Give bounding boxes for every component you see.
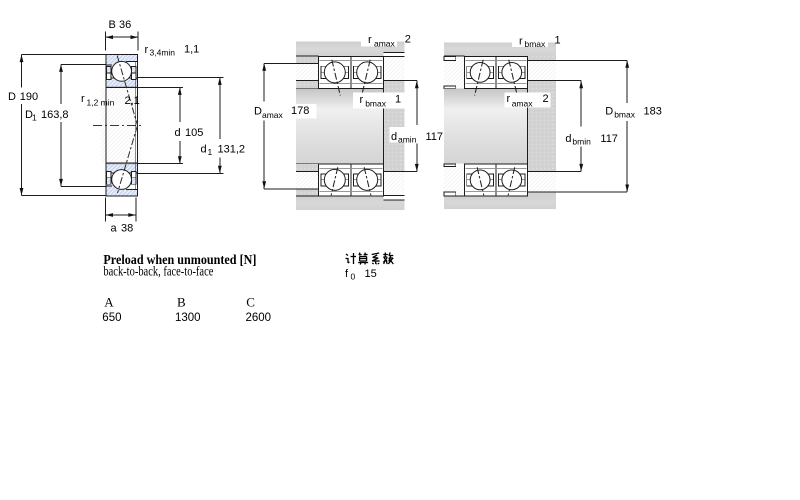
svg-text:105: 105 bbox=[185, 127, 203, 139]
svg-text:1: 1 bbox=[32, 113, 37, 123]
svg-text:A: A bbox=[104, 294, 114, 309]
svg-text:r: r bbox=[507, 93, 511, 105]
svg-text:bmax: bmax bbox=[525, 39, 547, 49]
svg-text:38: 38 bbox=[121, 223, 133, 235]
svg-text:d: d bbox=[201, 144, 207, 156]
svg-text:2: 2 bbox=[405, 34, 411, 46]
svg-text:117: 117 bbox=[600, 133, 618, 145]
svg-text:0: 0 bbox=[351, 272, 356, 282]
svg-text:2: 2 bbox=[543, 93, 549, 105]
svg-text:163,8: 163,8 bbox=[41, 109, 69, 121]
svg-text:117: 117 bbox=[426, 131, 444, 143]
svg-text:r: r bbox=[81, 93, 85, 105]
svg-text:131,2: 131,2 bbox=[218, 144, 246, 156]
svg-text:r: r bbox=[519, 36, 523, 48]
svg-text:a: a bbox=[111, 223, 118, 235]
svg-text:D: D bbox=[254, 106, 262, 118]
svg-text:15: 15 bbox=[365, 268, 377, 280]
svg-text:amin: amin bbox=[398, 135, 417, 145]
svg-text:178: 178 bbox=[291, 105, 309, 117]
svg-text:1: 1 bbox=[395, 94, 401, 106]
svg-text:183: 183 bbox=[644, 106, 662, 118]
svg-text:d: d bbox=[391, 131, 397, 143]
svg-text:1300: 1300 bbox=[175, 312, 201, 324]
svg-text:C: C bbox=[246, 294, 255, 309]
svg-text:amax: amax bbox=[262, 110, 284, 120]
svg-text:bmax: bmax bbox=[365, 99, 387, 109]
svg-text:1,1: 1,1 bbox=[184, 44, 199, 56]
svg-text:amax: amax bbox=[374, 38, 396, 48]
svg-text:d: d bbox=[565, 133, 571, 145]
svg-text:1: 1 bbox=[555, 35, 561, 47]
svg-text:1,2 min: 1,2 min bbox=[87, 98, 115, 108]
svg-text:r: r bbox=[145, 44, 149, 56]
svg-text:2600: 2600 bbox=[246, 312, 272, 324]
svg-text:back-to-back, face-to-face: back-to-back, face-to-face bbox=[103, 264, 213, 279]
svg-text:650: 650 bbox=[102, 312, 121, 324]
svg-text:36: 36 bbox=[119, 19, 131, 31]
svg-text:d: d bbox=[175, 127, 181, 139]
svg-text:D: D bbox=[8, 91, 16, 103]
svg-text:bmin: bmin bbox=[572, 137, 591, 147]
svg-text:2,1: 2,1 bbox=[125, 95, 140, 107]
svg-text:1: 1 bbox=[208, 147, 213, 157]
svg-text:amax: amax bbox=[512, 98, 534, 108]
svg-text:r: r bbox=[368, 34, 372, 46]
svg-text:190: 190 bbox=[20, 91, 38, 103]
svg-text:D: D bbox=[605, 106, 613, 118]
svg-text:B: B bbox=[109, 19, 116, 31]
svg-text:r: r bbox=[360, 94, 364, 106]
svg-text:bmax: bmax bbox=[614, 110, 636, 120]
svg-text:B: B bbox=[177, 294, 186, 309]
svg-text:3,4min: 3,4min bbox=[150, 48, 176, 58]
